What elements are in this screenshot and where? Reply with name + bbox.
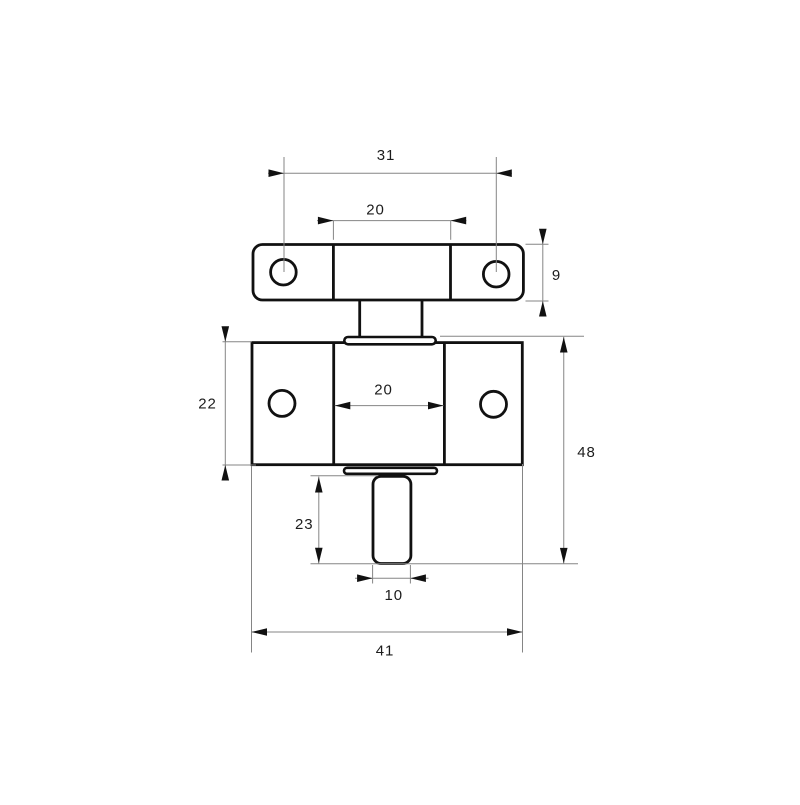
svg-text:31: 31 <box>377 147 396 164</box>
svg-text:48: 48 <box>577 444 596 461</box>
svg-text:10: 10 <box>385 587 404 604</box>
svg-text:22: 22 <box>198 396 217 413</box>
svg-text:23: 23 <box>295 516 314 533</box>
svg-text:20: 20 <box>366 202 385 219</box>
svg-text:20: 20 <box>374 381 393 398</box>
svg-text:41: 41 <box>376 643 395 660</box>
svg-text:9: 9 <box>552 267 561 284</box>
